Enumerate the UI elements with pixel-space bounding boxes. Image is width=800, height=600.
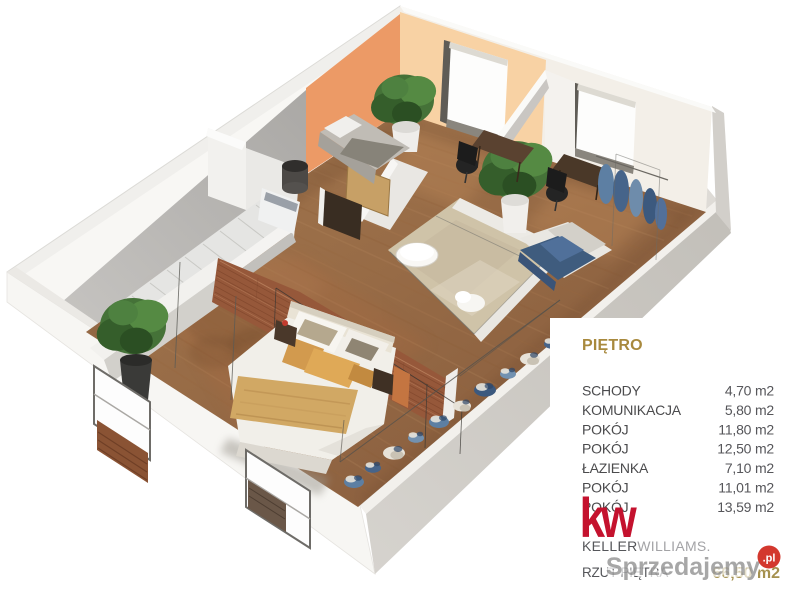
svg-text:POKÓJ: POKÓJ bbox=[582, 421, 628, 437]
svg-text:11,01 m2: 11,01 m2 bbox=[718, 480, 774, 496]
svg-text:13,59 m2: 13,59 m2 bbox=[717, 499, 774, 515]
svg-text:POKÓJ: POKÓJ bbox=[582, 441, 628, 457]
svg-text:.pl: .pl bbox=[763, 553, 776, 565]
svg-text:Sprzedajemy: Sprzedajemy bbox=[606, 553, 760, 581]
svg-text:KOMUNIKACJA: KOMUNIKACJA bbox=[582, 402, 682, 418]
svg-text:SCHODY: SCHODY bbox=[582, 383, 642, 399]
svg-text:KELLERWILLIAMS.: KELLERWILLIAMS. bbox=[582, 538, 711, 554]
svg-text:5,80 m2: 5,80 m2 bbox=[725, 402, 775, 418]
svg-text:4,70 m2: 4,70 m2 bbox=[725, 383, 775, 399]
svg-text:11,80 m2: 11,80 m2 bbox=[718, 421, 774, 437]
svg-text:ŁAZIENKA: ŁAZIENKA bbox=[582, 460, 649, 476]
svg-text:12,50 m2: 12,50 m2 bbox=[717, 441, 774, 457]
svg-text:PIĘTRO: PIĘTRO bbox=[582, 337, 643, 354]
svg-text:7,10 m2: 7,10 m2 bbox=[725, 460, 775, 476]
